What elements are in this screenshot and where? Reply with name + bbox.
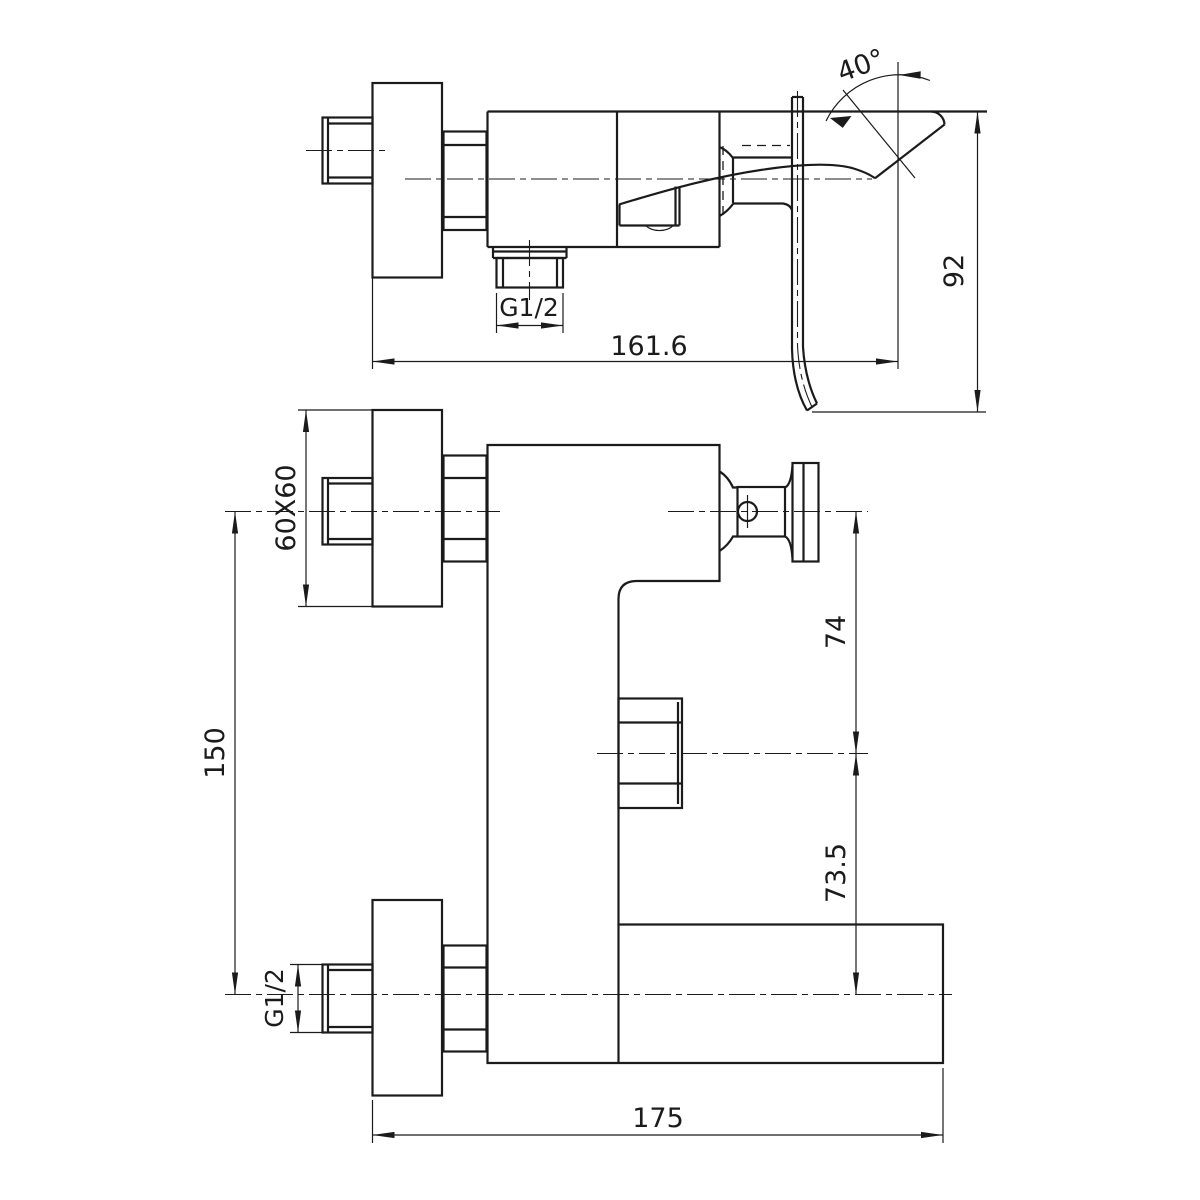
lower-wall-plate [373,900,443,1096]
dimension-outlet-thread: G1/2 [497,293,564,333]
upper-wall-plate [373,410,443,607]
hex-connector-side [444,132,487,231]
dim-label-handle-angle: 40° [833,43,889,88]
valve-body-side [405,112,987,248]
inlet-pipe-side [306,118,386,184]
dim-label-pivot-to-diverter: 74 [821,615,852,649]
dimension-total-width: 175 [373,1068,944,1143]
handle-blade-side [792,91,817,411]
outlet-pipe-side [493,240,567,300]
open-handle-outline [843,90,945,178]
dimension-inlet-thread: G1/2 [260,965,325,1033]
dimension-body-length: 161.6 [373,278,899,370]
lower-inlet-pipe [225,965,952,1033]
dimension-diverter-to-spout: 73.5 [821,754,856,995]
wall-plate-side [373,83,443,278]
lower-hex-nut [444,946,487,1052]
dim-label-total-width: 175 [632,1103,684,1134]
dimension-pivot-to-diverter: 74 [821,512,856,754]
dimension-handle-angle: 40° [826,43,930,369]
handle-bonnet-side [720,147,793,216]
dim-label-body-length: 161.6 [610,331,687,362]
dimension-inlet-spacing: 150 [200,512,235,995]
faucet-technical-drawing: 40° G1/2 161.6 [0,0,1200,1200]
dim-label-diverter-to-spout: 73.5 [821,843,852,903]
technical-drawing-page: 40° G1/2 161.6 [0,0,1200,1200]
dim-label-spout-height: 92 [939,254,970,288]
diverter-knob-front [597,699,868,809]
front-view: 60X60 150 74 73.5 G1/2 175 [200,410,952,1143]
dimension-spout-height: 92 [812,112,986,413]
handle-pivot-front [720,463,819,562]
dim-label-inlet-spacing: 150 [200,727,231,779]
side-view: 40° G1/2 161.6 [306,43,987,412]
dim-label-inlet-thread: G1/2 [260,968,289,1028]
upper-hex-nut [444,456,487,562]
dim-label-plate-size: 60X60 [271,464,302,551]
dim-label-outlet-thread: G1/2 [499,293,559,322]
